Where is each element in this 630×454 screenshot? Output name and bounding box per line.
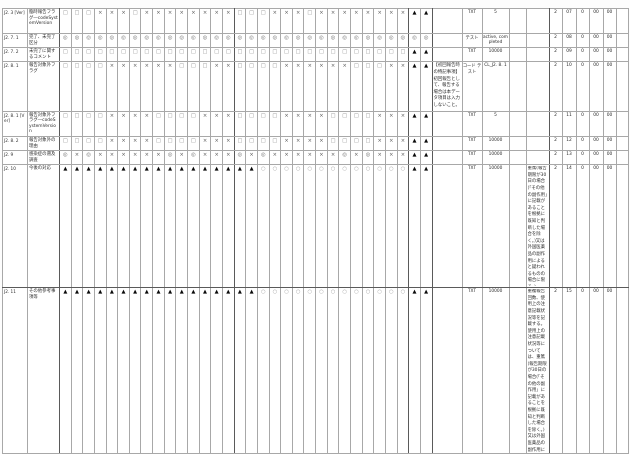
tail-cell — [616, 62, 628, 111]
symbol-cell: × — [153, 62, 165, 111]
num-cell: 2 — [549, 9, 562, 34]
row-id-cell: J2. 9 — [3, 151, 28, 165]
num-cell: 07 — [562, 9, 576, 34]
symbol-cell: × — [316, 151, 328, 165]
symbol-cell: □ — [246, 9, 258, 34]
symbol-cell: × — [246, 151, 258, 165]
aux-cell — [509, 111, 526, 136]
symbol-cell: ◎ — [362, 151, 374, 165]
symbol-cell: × — [281, 136, 293, 150]
symbol-cell: □ — [71, 111, 83, 136]
symbol-cell: ◎ — [83, 34, 95, 48]
symbol-cell: × — [222, 62, 234, 111]
remark-cell — [526, 111, 549, 136]
symbol-cell: × — [351, 151, 363, 165]
symbol-cell: □ — [257, 111, 269, 136]
special-note-cell — [432, 165, 462, 288]
symbol-cell: ◎ — [222, 34, 234, 48]
triangle-symbol-cell: ▲ — [164, 165, 176, 288]
num-cell: 0 — [576, 165, 589, 288]
symbol-cell: ○ — [257, 165, 269, 288]
length-value-cell: 5 — [482, 111, 509, 136]
triangle-symbol-cell: ▲ — [409, 165, 421, 288]
symbol-cell: □ — [257, 48, 269, 62]
num-cell: 0 — [576, 9, 589, 34]
symbol-cell: ○ — [269, 165, 281, 288]
symbol-cell: □ — [60, 48, 72, 62]
num-cell: 08 — [562, 34, 576, 48]
symbol-cell: □ — [71, 62, 83, 111]
num-cell: 15 — [562, 288, 576, 454]
symbol-cell: □ — [246, 48, 258, 62]
data-type-cell: テスト — [462, 34, 482, 48]
length-value-cell: 10000 — [482, 48, 509, 62]
num-cell: 09 — [562, 48, 576, 62]
symbol-cell: ○ — [292, 288, 304, 454]
data-type-cell: TXT — [462, 165, 482, 288]
symbol-cell: □ — [351, 136, 363, 150]
triangle-symbol-cell: ▲ — [129, 288, 141, 454]
symbol-cell: □ — [327, 111, 339, 136]
symbol-cell: □ — [351, 62, 363, 111]
symbol-cell: × — [374, 9, 386, 34]
symbol-cell: ◎ — [246, 34, 258, 48]
symbol-cell: □ — [83, 62, 95, 111]
symbol-cell: □ — [164, 136, 176, 150]
special-note-cell — [432, 111, 462, 136]
field-label-cell: 今後の対応 — [28, 165, 60, 288]
symbol-cell: ○ — [385, 288, 397, 454]
symbol-cell: □ — [153, 48, 165, 62]
symbol-cell: × — [106, 151, 118, 165]
e2b-items-table: J2. 3 [Ver]臨時報告フラグ―codeSystemVersion□□□×… — [2, 8, 629, 454]
length-value-cell: 10000 — [482, 288, 509, 454]
data-type-cell: TXT — [462, 151, 482, 165]
symbol-cell: × — [71, 151, 83, 165]
symbol-cell: ○ — [385, 165, 397, 288]
data-type-cell: コード テスト — [462, 62, 482, 111]
symbol-cell: × — [281, 62, 293, 111]
symbol-cell: □ — [362, 111, 374, 136]
symbol-cell: □ — [83, 111, 95, 136]
symbol-cell: □ — [234, 62, 246, 111]
triangle-symbol-cell: ▲ — [199, 288, 211, 454]
symbol-cell: × — [281, 9, 293, 34]
symbol-cell: ◎ — [234, 34, 246, 48]
row-id-cell: J2. 8. 1 — [3, 62, 28, 111]
tail-cell — [616, 151, 628, 165]
symbol-cell: × — [176, 151, 188, 165]
num-cell: 14 — [562, 165, 576, 288]
symbol-cell: □ — [199, 62, 211, 111]
remark-cell — [526, 136, 549, 150]
triangle-symbol-cell: ▲ — [141, 165, 153, 288]
num-cell: 0 — [576, 34, 589, 48]
table-row: J2. 8. 2報告対象外の理由□□□□××××□□□□×××□□□□××××□… — [3, 136, 629, 150]
symbol-cell: □ — [71, 9, 83, 34]
num-cell: 00 — [589, 9, 603, 34]
symbol-cell: ◎ — [316, 34, 328, 48]
num-cell: 00 — [589, 111, 603, 136]
data-type-cell: TXT — [462, 136, 482, 150]
symbol-cell: ◎ — [304, 34, 316, 48]
symbol-cell: × — [397, 9, 409, 34]
symbol-cell: □ — [164, 48, 176, 62]
num-cell: 0 — [576, 62, 589, 111]
remark-cell — [526, 9, 549, 34]
symbol-cell: □ — [153, 111, 165, 136]
num-cell: 2 — [549, 62, 562, 111]
num-cell: 00 — [603, 9, 616, 34]
symbol-cell: × — [397, 62, 409, 111]
symbol-cell: □ — [397, 48, 409, 62]
num-cell: 00 — [589, 34, 603, 48]
table-row: J2. 3 [Ver]臨時報告フラグ―codeSystemVersion□□□×… — [3, 9, 629, 34]
num-cell: 00 — [589, 165, 603, 288]
aux-cell — [509, 34, 526, 48]
symbol-cell: ◎ — [281, 34, 293, 48]
length-value-cell: 10000 — [482, 151, 509, 165]
triangle-symbol-cell: ▲ — [188, 165, 200, 288]
symbol-cell: □ — [374, 62, 386, 111]
num-cell: 10 — [562, 62, 576, 111]
symbol-cell: × — [316, 136, 328, 150]
triangle-symbol-cell: ▲ — [153, 165, 165, 288]
symbol-cell: × — [222, 111, 234, 136]
symbol-cell: □ — [176, 62, 188, 111]
tail-cell — [616, 165, 628, 288]
symbol-cell: □ — [118, 48, 130, 62]
triangle-symbol-cell: ▲ — [420, 288, 432, 454]
symbol-cell: □ — [269, 111, 281, 136]
symbol-cell: × — [327, 9, 339, 34]
symbol-cell: □ — [257, 62, 269, 111]
symbol-cell: × — [339, 62, 351, 111]
symbol-cell: □ — [246, 62, 258, 111]
symbol-cell: × — [118, 111, 130, 136]
num-cell: 00 — [603, 136, 616, 150]
symbol-cell: × — [397, 151, 409, 165]
symbol-cell: ◎ — [409, 34, 421, 48]
num-cell: 2 — [549, 165, 562, 288]
symbol-cell: □ — [83, 48, 95, 62]
symbol-cell: × — [118, 62, 130, 111]
symbol-cell: ◎ — [234, 151, 246, 165]
symbol-cell: × — [222, 9, 234, 34]
tail-cell — [616, 34, 628, 48]
symbol-cell: ◎ — [211, 34, 223, 48]
symbol-cell: □ — [60, 62, 72, 111]
symbol-cell: × — [199, 111, 211, 136]
row-id-cell: J2. 8. 1 [Ver] — [3, 111, 28, 136]
remark-cell: 重篤(報告期限が30日の場合(「その他の副作用」に記載があることを根拠に既知と判… — [526, 165, 549, 288]
scanned-spec-sheet: J2. 3 [Ver]臨時報告フラグ―codeSystemVersion□□□×… — [2, 8, 629, 454]
triangle-symbol-cell: ▲ — [211, 165, 223, 288]
symbol-cell: ◎ — [106, 34, 118, 48]
num-cell: 2 — [549, 151, 562, 165]
length-value-cell: active, completed — [482, 34, 509, 48]
triangle-symbol-cell: ▲ — [106, 288, 118, 454]
symbol-cell: ◎ — [129, 34, 141, 48]
aux-cell — [509, 136, 526, 150]
symbol-cell: × — [385, 62, 397, 111]
symbol-cell: □ — [188, 136, 200, 150]
triangle-symbol-cell: ▲ — [71, 288, 83, 454]
symbol-cell: × — [281, 111, 293, 136]
row-id-cell: J2. 11 — [3, 288, 28, 454]
symbol-cell: × — [129, 62, 141, 111]
symbol-cell: × — [164, 62, 176, 111]
symbol-cell: □ — [316, 48, 328, 62]
num-cell: 00 — [603, 151, 616, 165]
symbol-cell: □ — [246, 111, 258, 136]
symbol-cell: × — [281, 151, 293, 165]
num-cell: 00 — [589, 288, 603, 454]
symbol-cell: ◎ — [292, 34, 304, 48]
field-label-cell: 報告対象外フラグ — [28, 62, 60, 111]
symbol-cell: □ — [60, 136, 72, 150]
symbol-cell: ◎ — [60, 151, 72, 165]
symbol-cell: □ — [94, 136, 106, 150]
special-note-cell — [432, 136, 462, 150]
symbol-cell: ◎ — [420, 34, 432, 48]
num-cell: 00 — [589, 62, 603, 111]
symbol-cell: × — [188, 9, 200, 34]
triangle-symbol-cell: ▲ — [176, 288, 188, 454]
tail-cell — [616, 48, 628, 62]
symbol-cell: × — [211, 136, 223, 150]
triangle-symbol-cell: ▲ — [188, 288, 200, 454]
triangle-symbol-cell: ▲ — [199, 165, 211, 288]
symbol-cell: × — [176, 9, 188, 34]
symbol-cell: □ — [269, 136, 281, 150]
triangle-symbol-cell: ▲ — [409, 9, 421, 34]
special-note-cell — [432, 151, 462, 165]
symbol-cell: × — [141, 151, 153, 165]
symbol-cell: × — [118, 136, 130, 150]
symbol-cell: ◎ — [385, 34, 397, 48]
symbol-cell: × — [316, 9, 328, 34]
num-cell: 0 — [576, 111, 589, 136]
symbol-cell: □ — [188, 62, 200, 111]
field-label-cell: 未完了に関するコメント — [28, 48, 60, 62]
triangle-symbol-cell: ▲ — [420, 62, 432, 111]
remark-cell — [526, 151, 549, 165]
symbol-cell: □ — [176, 111, 188, 136]
table-row: J2. 8. 1 [Ver]報告対象外フラグ―codeSystemVersion… — [3, 111, 629, 136]
symbol-cell: □ — [211, 48, 223, 62]
row-id-cell: J2. 7. 1 — [3, 34, 28, 48]
symbol-cell: □ — [60, 9, 72, 34]
symbol-cell: ◎ — [257, 34, 269, 48]
symbol-cell: □ — [71, 136, 83, 150]
symbol-cell: × — [304, 111, 316, 136]
symbol-cell: □ — [362, 62, 374, 111]
field-label-cell: 完了、未完了区分 — [28, 34, 60, 48]
symbol-cell: ○ — [351, 288, 363, 454]
symbol-cell: ○ — [339, 288, 351, 454]
num-cell: 0 — [576, 151, 589, 165]
triangle-symbol-cell: ▲ — [141, 288, 153, 454]
symbol-cell: × — [106, 136, 118, 150]
symbol-cell: × — [222, 136, 234, 150]
symbol-cell: □ — [234, 111, 246, 136]
symbol-cell: □ — [351, 111, 363, 136]
symbol-cell: □ — [129, 9, 141, 34]
symbol-cell: □ — [304, 9, 316, 34]
triangle-symbol-cell: ▲ — [409, 151, 421, 165]
triangle-symbol-cell: ▲ — [60, 288, 72, 454]
symbol-cell: □ — [199, 48, 211, 62]
data-type-cell: TXT — [462, 9, 482, 34]
triangle-symbol-cell: ▲ — [118, 165, 130, 288]
symbol-cell: × — [106, 111, 118, 136]
aux-cell — [509, 62, 526, 111]
num-cell: 00 — [603, 48, 616, 62]
symbol-cell: □ — [327, 48, 339, 62]
symbol-cell: ◎ — [397, 34, 409, 48]
num-cell: 0 — [576, 48, 589, 62]
symbol-cell: × — [339, 9, 351, 34]
num-cell: 2 — [549, 288, 562, 454]
num-cell: 2 — [549, 48, 562, 62]
symbol-cell: ◎ — [153, 34, 165, 48]
symbol-cell: × — [141, 111, 153, 136]
num-cell: 00 — [603, 62, 616, 111]
symbol-cell: □ — [176, 48, 188, 62]
symbol-cell: □ — [94, 111, 106, 136]
table-row: J2. 8. 1報告対象外フラグ□□□□××××××□□□××□□□□×××××… — [3, 62, 629, 111]
symbol-cell: ◎ — [199, 34, 211, 48]
symbol-cell: × — [199, 9, 211, 34]
symbol-cell: □ — [246, 136, 258, 150]
symbol-cell: × — [292, 136, 304, 150]
symbol-cell: □ — [281, 48, 293, 62]
symbol-cell: × — [199, 136, 211, 150]
symbol-cell: ○ — [327, 165, 339, 288]
table-row: J2. 10今後の対応▲▲▲▲▲▲▲▲▲▲▲▲▲▲▲▲▲○○○○○○○○○○○○… — [3, 165, 629, 288]
symbol-cell: □ — [234, 136, 246, 150]
table-row: J2. 7. 2未完了に関するコメント□□□□□□□□□□□□□□□□□□□□□… — [3, 48, 629, 62]
symbol-cell: ○ — [327, 288, 339, 454]
symbol-cell: □ — [339, 48, 351, 62]
aux-cell — [509, 288, 526, 454]
symbol-cell: × — [327, 151, 339, 165]
symbol-cell: □ — [71, 48, 83, 62]
symbol-cell: □ — [351, 48, 363, 62]
triangle-symbol-cell: ▲ — [94, 165, 106, 288]
aux-cell — [509, 9, 526, 34]
symbol-cell: □ — [362, 48, 374, 62]
num-cell: 2 — [549, 111, 562, 136]
special-note-cell — [432, 9, 462, 34]
symbol-cell: × — [141, 136, 153, 150]
table-row: J2. 9感染症の遡及調査◎×◎××××××◎×◎×××◎×◎××××××◎×◎… — [3, 151, 629, 165]
symbol-cell: □ — [234, 9, 246, 34]
symbol-cell: ◎ — [176, 34, 188, 48]
remark-cell — [526, 48, 549, 62]
symbol-cell: × — [292, 151, 304, 165]
symbol-cell: × — [211, 9, 223, 34]
symbol-cell: □ — [222, 48, 234, 62]
num-cell: 0 — [576, 136, 589, 150]
symbol-cell: ○ — [374, 165, 386, 288]
table-row: J2. 7. 1完了、未完了区分◎◎◎◎◎◎◎◎◎◎◎◎◎◎◎◎◎◎◎◎◎◎◎◎… — [3, 34, 629, 48]
symbol-cell: × — [385, 151, 397, 165]
symbol-cell: ○ — [362, 288, 374, 454]
num-cell: 13 — [562, 151, 576, 165]
row-id-cell: J2. 8. 2 — [3, 136, 28, 150]
remark-text: 重複報告回数、使用上の注意記載状況等を記載する。使用上の注意記載状況等については… — [528, 289, 548, 452]
symbol-cell: × — [304, 136, 316, 150]
symbol-cell: ○ — [374, 288, 386, 454]
length-value-cell: 5 — [482, 9, 509, 34]
tail-cell — [616, 9, 628, 34]
symbol-cell: □ — [141, 48, 153, 62]
triangle-symbol-cell: ▲ — [409, 62, 421, 111]
symbol-cell: ○ — [292, 165, 304, 288]
field-label-cell: 報告対象外フラグ―codeSystemVersion — [28, 111, 60, 136]
symbol-cell: ◎ — [83, 151, 95, 165]
symbol-cell: × — [304, 62, 316, 111]
triangle-symbol-cell: ▲ — [420, 165, 432, 288]
symbol-cell: ◎ — [351, 34, 363, 48]
symbol-cell: □ — [94, 62, 106, 111]
symbol-cell: ◎ — [188, 151, 200, 165]
symbol-cell: ◎ — [141, 34, 153, 48]
symbol-cell: × — [292, 9, 304, 34]
symbol-cell: × — [211, 62, 223, 111]
symbol-cell: ○ — [316, 288, 328, 454]
num-cell: 11 — [562, 111, 576, 136]
symbol-cell: × — [327, 62, 339, 111]
symbol-cell: × — [385, 136, 397, 150]
symbol-cell: × — [106, 62, 118, 111]
remark-cell — [526, 62, 549, 111]
symbol-cell: × — [211, 111, 223, 136]
symbol-cell: ○ — [362, 165, 374, 288]
triangle-symbol-cell: ▲ — [129, 165, 141, 288]
triangle-symbol-cell: ▲ — [246, 288, 258, 454]
field-label-cell: その他参考事項等 — [28, 288, 60, 454]
triangle-symbol-cell: ▲ — [409, 136, 421, 150]
symbol-cell: ◎ — [164, 151, 176, 165]
symbol-cell: □ — [106, 48, 118, 62]
symbol-cell: × — [351, 9, 363, 34]
symbol-cell: × — [269, 9, 281, 34]
symbol-cell: × — [292, 111, 304, 136]
symbol-cell: □ — [129, 48, 141, 62]
symbol-cell: □ — [176, 136, 188, 150]
tail-cell — [616, 111, 628, 136]
tail-cell — [616, 288, 628, 454]
symbol-cell: × — [199, 151, 211, 165]
special-note-cell — [432, 48, 462, 62]
symbol-cell: □ — [304, 48, 316, 62]
length-value-cell: 10000 — [482, 165, 509, 288]
symbol-cell: ○ — [281, 288, 293, 454]
row-id-cell: J2. 10 — [3, 165, 28, 288]
symbol-cell: × — [397, 136, 409, 150]
special-note-cell — [432, 34, 462, 48]
symbol-cell: □ — [385, 48, 397, 62]
remark-cell: 重複報告回数、使用上の注意記載状況等を記載する。使用上の注意記載状況等については… — [526, 288, 549, 454]
field-label-cell: 報告対象外の理由 — [28, 136, 60, 150]
triangle-symbol-cell: ▲ — [409, 48, 421, 62]
field-label-cell: 臨時報告フラグ―codeSystemVersion — [28, 9, 60, 34]
triangle-symbol-cell: ▲ — [164, 288, 176, 454]
special-note-cell: 【初回報告時の特記事項】初回報告として、報告する場合は本データ項目は入力しないこ… — [432, 62, 462, 111]
